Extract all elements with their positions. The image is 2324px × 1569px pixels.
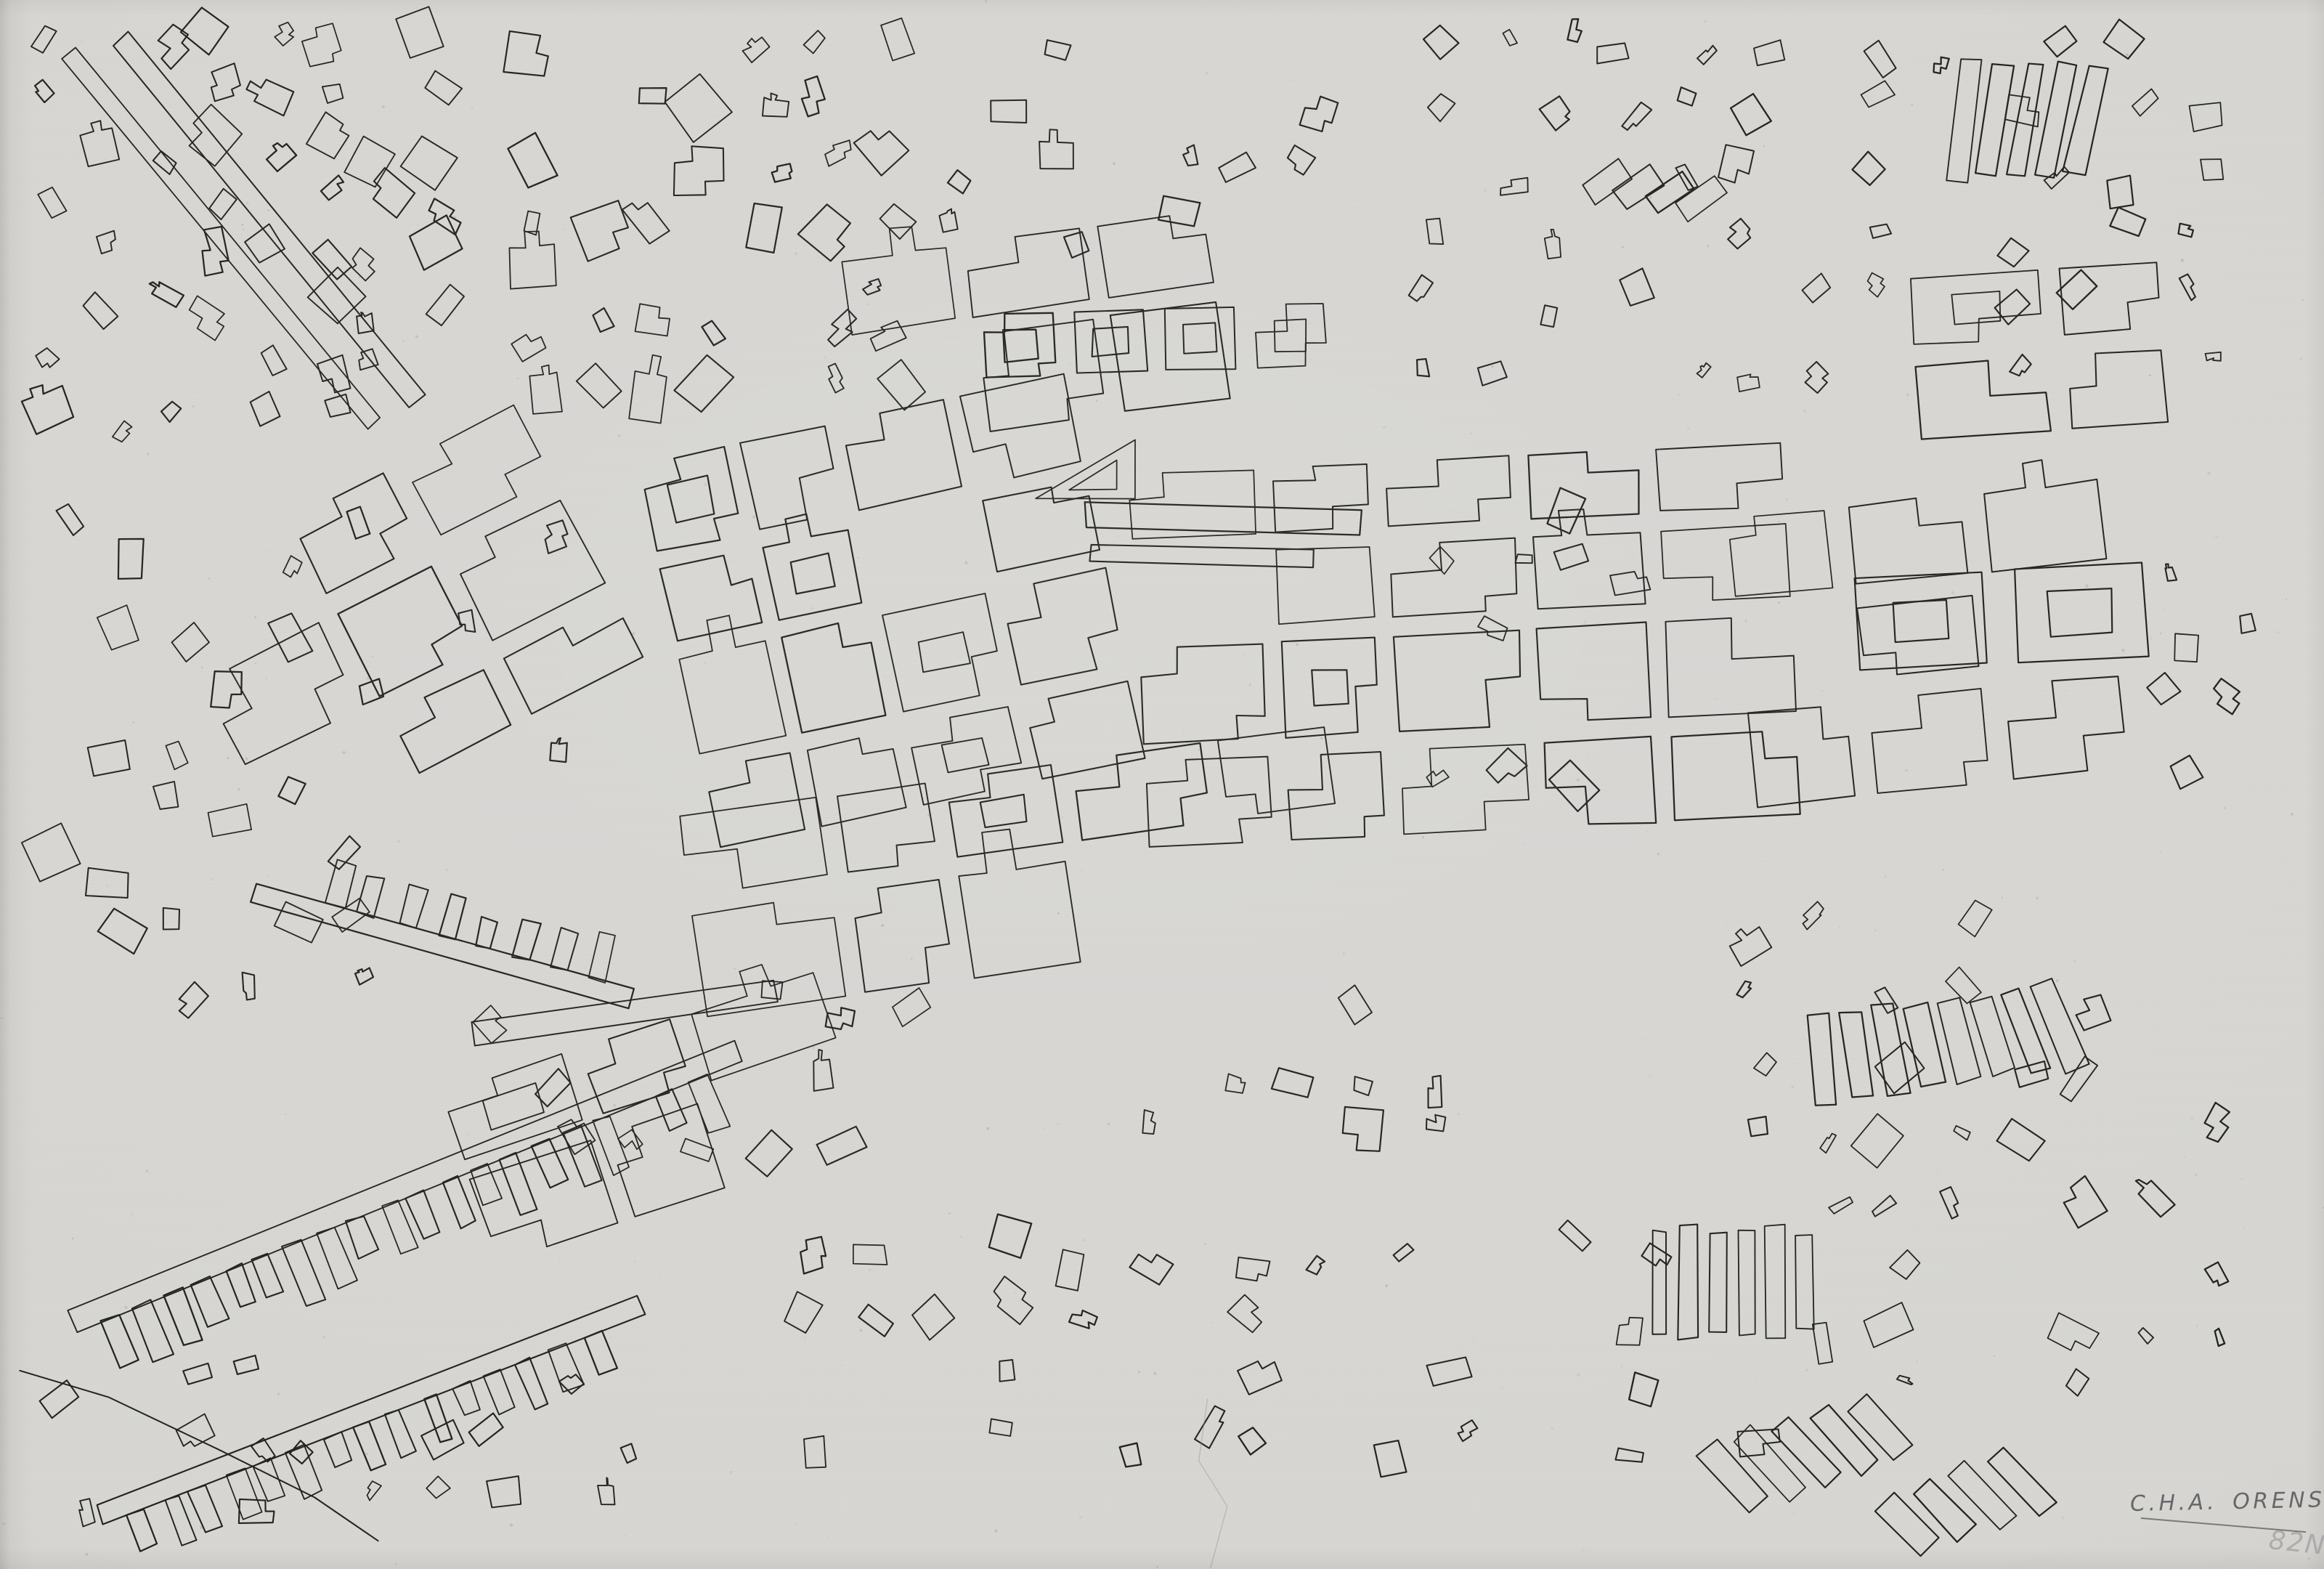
building-footprint — [911, 707, 1021, 805]
building-footprint — [1540, 305, 1557, 327]
paper-speck — [1206, 72, 1208, 74]
paper-speck — [2149, 374, 2151, 376]
building-footprint — [179, 982, 208, 1018]
paper-speck — [725, 1418, 726, 1419]
paper-speck — [309, 246, 310, 248]
building-footprint — [153, 782, 179, 809]
building-cluster-scatter — [22, 7, 2256, 1526]
building-footprint — [709, 753, 805, 848]
building-footprint — [1417, 359, 1429, 376]
paper-speck — [1791, 1085, 1794, 1088]
paper-speck — [2195, 1174, 2197, 1176]
building-footprint — [2214, 678, 2240, 714]
paper-speck — [618, 434, 620, 437]
building-footprint — [2136, 1180, 2175, 1217]
paper-speck — [2244, 1228, 2246, 1229]
paper-speck — [1385, 1284, 1388, 1287]
paper-speck — [1778, 520, 1780, 522]
paper-speck — [911, 957, 913, 960]
building-footprint — [132, 1300, 174, 1362]
building-footprint — [1914, 1479, 1976, 1542]
building-footprint — [550, 928, 578, 970]
paper-speck — [2163, 609, 2164, 610]
paper-speck — [1727, 925, 1728, 927]
building-footprint — [413, 405, 540, 535]
building-footprint — [1808, 1013, 1836, 1106]
paper-speck — [1343, 953, 1345, 955]
paper-speck — [2184, 1156, 2185, 1158]
paper-speck — [1839, 926, 1840, 928]
building-footprint — [1934, 57, 1949, 73]
building-footprint — [828, 309, 856, 346]
building-footprint — [2147, 673, 2180, 705]
building-footprint — [1730, 927, 1772, 966]
paper-speck — [1081, 869, 1082, 871]
paper-speck — [397, 840, 399, 843]
paper-speck — [859, 1329, 862, 1331]
paper-speck — [1906, 394, 1909, 396]
building-footprint — [1872, 689, 1987, 793]
paper-speck — [1293, 80, 1295, 82]
building-footprint — [512, 920, 541, 960]
paper-speck — [927, 814, 930, 816]
paper-speck — [1911, 103, 1914, 106]
building-footprint — [674, 355, 734, 412]
building-footprint — [2064, 1176, 2108, 1228]
building-footprint — [1748, 707, 1855, 807]
paper-speck — [795, 252, 797, 255]
building-footprint — [2008, 676, 2124, 779]
paper-speck — [192, 405, 195, 408]
paper-speck — [1645, 1039, 1646, 1040]
building-footprint — [150, 282, 184, 307]
paper-speck — [1687, 428, 1689, 430]
building-footprint — [2104, 20, 2145, 59]
paper-speck — [2085, 584, 2088, 587]
building-footprint — [635, 304, 670, 336]
building-footprint — [1386, 455, 1511, 526]
building-footprint — [1500, 178, 1528, 195]
building-footprint — [22, 823, 81, 881]
building-footprint — [302, 23, 341, 66]
figure-ground-map — [0, 0, 2324, 1569]
paper-speck — [1707, 245, 1710, 248]
building-footprint — [622, 203, 670, 243]
building-footprint — [484, 1369, 515, 1414]
building-footprint — [1997, 238, 2028, 267]
building-footprint — [1089, 545, 1313, 567]
building-footprint — [1622, 102, 1651, 130]
building-footprint — [35, 80, 54, 102]
paper-speck — [2160, 633, 2161, 634]
building-footprint — [62, 48, 380, 429]
building-footprint — [837, 783, 935, 872]
building-footprint — [1870, 224, 1891, 238]
paper-speck — [1457, 1112, 1460, 1115]
building-footprint — [817, 1127, 867, 1165]
building-footprint — [1428, 94, 1455, 121]
building-footprint — [1307, 1256, 1325, 1275]
paper-speck — [752, 515, 755, 518]
building-footprint — [829, 363, 844, 392]
paper-speck — [245, 758, 248, 761]
building-footprint — [1374, 1440, 1407, 1477]
building-footprint — [1409, 275, 1433, 301]
building-footprint — [1110, 302, 1230, 411]
paper-speck — [2222, 57, 2224, 58]
paper-speck — [1805, 1369, 1808, 1371]
building-footprint — [325, 394, 350, 417]
building-footprint — [1354, 1077, 1373, 1095]
paper-speck — [1354, 207, 1355, 208]
paper-speck — [2215, 536, 2218, 539]
building-footprint — [97, 605, 139, 650]
building-footprint — [275, 902, 323, 943]
building-footprint — [1554, 544, 1588, 570]
paper-speck — [1, 1017, 3, 1019]
paper-speck — [2056, 979, 2059, 982]
building-footprint — [1272, 1068, 1314, 1098]
building-footprint — [1811, 1405, 1878, 1476]
building-footprint — [2139, 1328, 2154, 1344]
building-footprint — [1940, 1187, 1958, 1219]
paper-speck — [1587, 754, 1588, 755]
building-footprint — [939, 209, 957, 232]
building-footprint — [405, 1191, 439, 1239]
building-footprint — [1288, 752, 1384, 840]
paper-speck — [1577, 779, 1580, 782]
building-footprint — [1503, 30, 1517, 46]
building-footprint — [1765, 1225, 1786, 1339]
paper-speck — [499, 1164, 500, 1166]
building-footprint — [846, 400, 962, 510]
building-footprint — [190, 296, 224, 340]
building-footprint — [511, 335, 545, 362]
paper-speck — [2160, 851, 2161, 853]
building-footprint — [772, 163, 792, 182]
building-footprint — [1426, 770, 1449, 787]
building-footprint — [1813, 1323, 1832, 1364]
building-footprint — [401, 137, 458, 190]
building-footprint — [588, 932, 615, 983]
paper-speck — [1082, 1238, 1085, 1241]
building-footprint — [804, 31, 825, 54]
building-footprint — [1097, 216, 1214, 298]
building-footprint — [960, 374, 1081, 478]
building-footprint — [308, 267, 366, 324]
paper-speck — [985, 0, 988, 3]
building-footprint — [577, 363, 622, 408]
paper-speck — [106, 885, 107, 886]
building-footprint — [1545, 230, 1561, 259]
paper-speck — [2190, 1117, 2193, 1120]
building-footprint — [1008, 568, 1118, 685]
paper-speck — [994, 1529, 997, 1532]
building-footprint — [545, 520, 568, 554]
building-footprint — [702, 321, 726, 346]
building-footprint — [585, 1331, 617, 1375]
building-footprint — [660, 556, 763, 641]
building-footprint — [1487, 748, 1527, 783]
paper-speck — [869, 1269, 871, 1272]
building-footprint — [912, 1294, 954, 1340]
paper-speck — [200, 1526, 203, 1529]
building-footprint — [1549, 761, 1599, 811]
building-footprint — [469, 1414, 503, 1446]
building-footprint — [1597, 43, 1628, 63]
building-footprint — [1219, 153, 1256, 182]
building-footprint — [1851, 1114, 1904, 1168]
paper-speck — [238, 749, 240, 750]
building-footprint — [208, 804, 252, 837]
paper-speck — [372, 656, 373, 657]
building-footprint — [2240, 614, 2256, 633]
building-footprint — [1276, 547, 1375, 624]
building-footprint — [357, 876, 384, 918]
paper-speck — [1484, 189, 1487, 192]
map-title: C.H.A. ORENSE — [2130, 1487, 2324, 1517]
building-footprint — [2044, 167, 2070, 190]
building-footprint — [2015, 1061, 2048, 1087]
paper-speck — [734, 968, 735, 970]
building-footprint — [1429, 1076, 1442, 1108]
paper-speck — [147, 453, 149, 455]
building-footprint — [113, 421, 132, 442]
building-footprint — [1829, 1197, 1853, 1214]
paper-speck — [395, 1563, 397, 1565]
building-footprint — [267, 143, 296, 171]
building-footprint — [1728, 219, 1750, 249]
paper-speck — [2073, 960, 2076, 962]
paper-speck — [1472, 1338, 1474, 1339]
building-footprint — [645, 447, 739, 551]
building-footprint — [2190, 102, 2222, 131]
building-footprint — [20, 1371, 378, 1541]
paper-speck — [1422, 836, 1424, 838]
paper-speck — [1161, 136, 1163, 137]
paper-speck — [1452, 510, 1453, 511]
building-footprint — [2132, 89, 2158, 115]
paper-speck — [500, 934, 502, 936]
building-footprint — [1739, 1231, 1755, 1336]
building-footprint — [68, 1041, 742, 1333]
paper-speck — [1622, 246, 1624, 248]
building-footprint — [79, 1499, 95, 1526]
paper-speck — [133, 721, 135, 723]
paper-speck — [1744, 620, 1747, 623]
paper-speck — [2150, 637, 2153, 639]
building-footprint — [2205, 1103, 2230, 1142]
paper-speck — [868, 304, 869, 305]
building-footprint — [1857, 596, 1978, 675]
building-footprint — [763, 514, 862, 620]
building-footprint — [1997, 1119, 2045, 1161]
paper-speck — [246, 202, 249, 205]
paper-speck — [454, 216, 457, 219]
building-footprint — [324, 1432, 352, 1467]
building-footprint — [804, 1436, 826, 1468]
paper-speck — [1360, 686, 1362, 689]
building-footprint — [385, 1410, 416, 1458]
paper-speck — [1765, 861, 1766, 862]
paper-specks — [1, 0, 2324, 1568]
paper-speck — [1070, 363, 1071, 365]
paper-speck — [1049, 836, 1051, 838]
building-footprint — [176, 1414, 215, 1447]
building-footprint — [665, 74, 732, 142]
building-footprint — [858, 1305, 893, 1337]
building-footprint — [245, 224, 285, 262]
building-footprint — [959, 830, 1080, 978]
building-footprint — [347, 507, 370, 539]
building-footprint — [2215, 1329, 2225, 1346]
paper-speck — [1405, 612, 1407, 614]
building-footprint — [1795, 1235, 1814, 1329]
paper-speck — [1649, 1075, 1651, 1077]
paper-speck — [2062, 1517, 2065, 1520]
paper-speck — [2128, 528, 2129, 530]
paper-speck — [2299, 357, 2302, 360]
building-footprint — [1805, 362, 1829, 393]
paper-speck — [1113, 162, 1116, 165]
paper-speck — [277, 1393, 280, 1395]
building-footprint — [118, 539, 144, 579]
building-footprint — [1718, 145, 1754, 182]
paper-speck — [267, 875, 269, 877]
building-footprint — [550, 738, 567, 762]
building-footprint — [84, 292, 118, 329]
building-footprint — [400, 885, 428, 928]
paper-speck — [1874, 930, 1876, 931]
paper-speck — [965, 561, 968, 564]
building-footprint — [1754, 1053, 1776, 1076]
building-footprint — [1559, 1220, 1591, 1251]
building-footprint — [2205, 1262, 2229, 1286]
building-footprint — [1803, 901, 1824, 929]
paper-speck — [660, 1273, 662, 1275]
paper-speck — [269, 551, 269, 551]
building-footprint — [854, 131, 909, 176]
building-footprint — [57, 504, 84, 535]
building-footprint — [473, 1005, 506, 1043]
paper-speck — [201, 666, 203, 668]
paper-speck — [2203, 173, 2204, 174]
paper-speck — [1383, 426, 1386, 429]
paper-speck — [86, 1553, 89, 1556]
building-footprint — [2174, 633, 2198, 662]
building-footprint — [344, 137, 395, 187]
building-footprint — [2166, 564, 2177, 580]
paper-speck — [1524, 844, 1525, 846]
paper-speck — [1649, 196, 1651, 198]
building-footprint — [1423, 25, 1459, 60]
building-footprint — [243, 973, 255, 1000]
sheet-number: 82N — [2267, 1525, 2324, 1561]
building-footprint — [1478, 616, 1508, 641]
building-footprint — [36, 348, 59, 368]
paper-speck — [1584, 620, 1587, 623]
building-footprint — [1158, 196, 1200, 227]
paper-speck — [1129, 1456, 1130, 1457]
paper-speck — [960, 1236, 962, 1238]
building-footprint — [1897, 1376, 1913, 1384]
building-footprint — [460, 500, 605, 641]
building-footprint — [1970, 997, 2015, 1077]
building-footprint — [251, 1438, 275, 1461]
paper-speck — [2291, 813, 2293, 816]
paper-speck — [1204, 1243, 1206, 1245]
building-footprint — [1238, 1427, 1266, 1454]
building-footprint — [425, 71, 462, 105]
building-footprint — [784, 1292, 823, 1333]
paper-speck — [146, 1169, 149, 1172]
building-footprint — [1665, 618, 1796, 718]
paper-speck — [382, 105, 385, 108]
building-footprint — [1697, 46, 1717, 65]
building-footprint — [97, 231, 115, 254]
paper-speck — [253, 572, 254, 574]
building-footprint — [2015, 563, 2149, 663]
building-footprint — [2179, 224, 2193, 238]
building-footprint — [2179, 274, 2195, 300]
paper-speck — [919, 1520, 921, 1521]
paper-speck — [234, 664, 236, 666]
paper-speck — [208, 577, 210, 579]
paper-speck — [1516, 378, 1518, 380]
building-footprint — [500, 1153, 537, 1215]
paper-speck — [2181, 259, 2184, 261]
building-footprint — [1849, 498, 1968, 584]
paper-speck — [2040, 690, 2041, 692]
paper-speck — [367, 677, 370, 680]
building-footprint — [948, 170, 971, 193]
paper-speck — [1132, 498, 1133, 499]
building-footprint — [808, 738, 906, 826]
building-footprint — [989, 1419, 1012, 1436]
building-footprint — [98, 909, 147, 954]
building-footprint — [487, 1476, 521, 1507]
paper-speck — [1885, 875, 1887, 877]
paper-speck — [266, 678, 267, 679]
paper-speck — [2277, 631, 2279, 633]
paper-speck — [2024, 1492, 2026, 1493]
paper-speck — [804, 1338, 805, 1339]
paper-speck — [131, 1213, 134, 1216]
paper-speck — [1943, 869, 1944, 870]
building-footprint — [1646, 171, 1694, 213]
building-footprint — [153, 151, 176, 174]
paper-speck — [1470, 432, 1472, 434]
paper-speck — [2126, 53, 2129, 56]
building-footprint — [688, 1074, 731, 1133]
paper-speck — [1057, 1123, 1058, 1124]
building-footprint — [1402, 745, 1529, 835]
paper-speck — [1797, 203, 1798, 205]
building-footprint — [211, 63, 240, 101]
building-footprint — [1848, 1394, 1912, 1460]
building-footprint — [1948, 1461, 2016, 1530]
building-footprint — [338, 567, 462, 697]
paper-speck — [211, 878, 214, 880]
paper-speck — [343, 751, 346, 754]
building-footprint — [251, 392, 280, 426]
building-footprint — [1426, 1115, 1445, 1132]
paper-speck — [1583, 1549, 1585, 1551]
building-footprint — [1959, 901, 1992, 937]
paper-speck — [1994, 1355, 1995, 1357]
building-footprint — [746, 203, 782, 253]
paper-speck — [1778, 601, 1780, 604]
